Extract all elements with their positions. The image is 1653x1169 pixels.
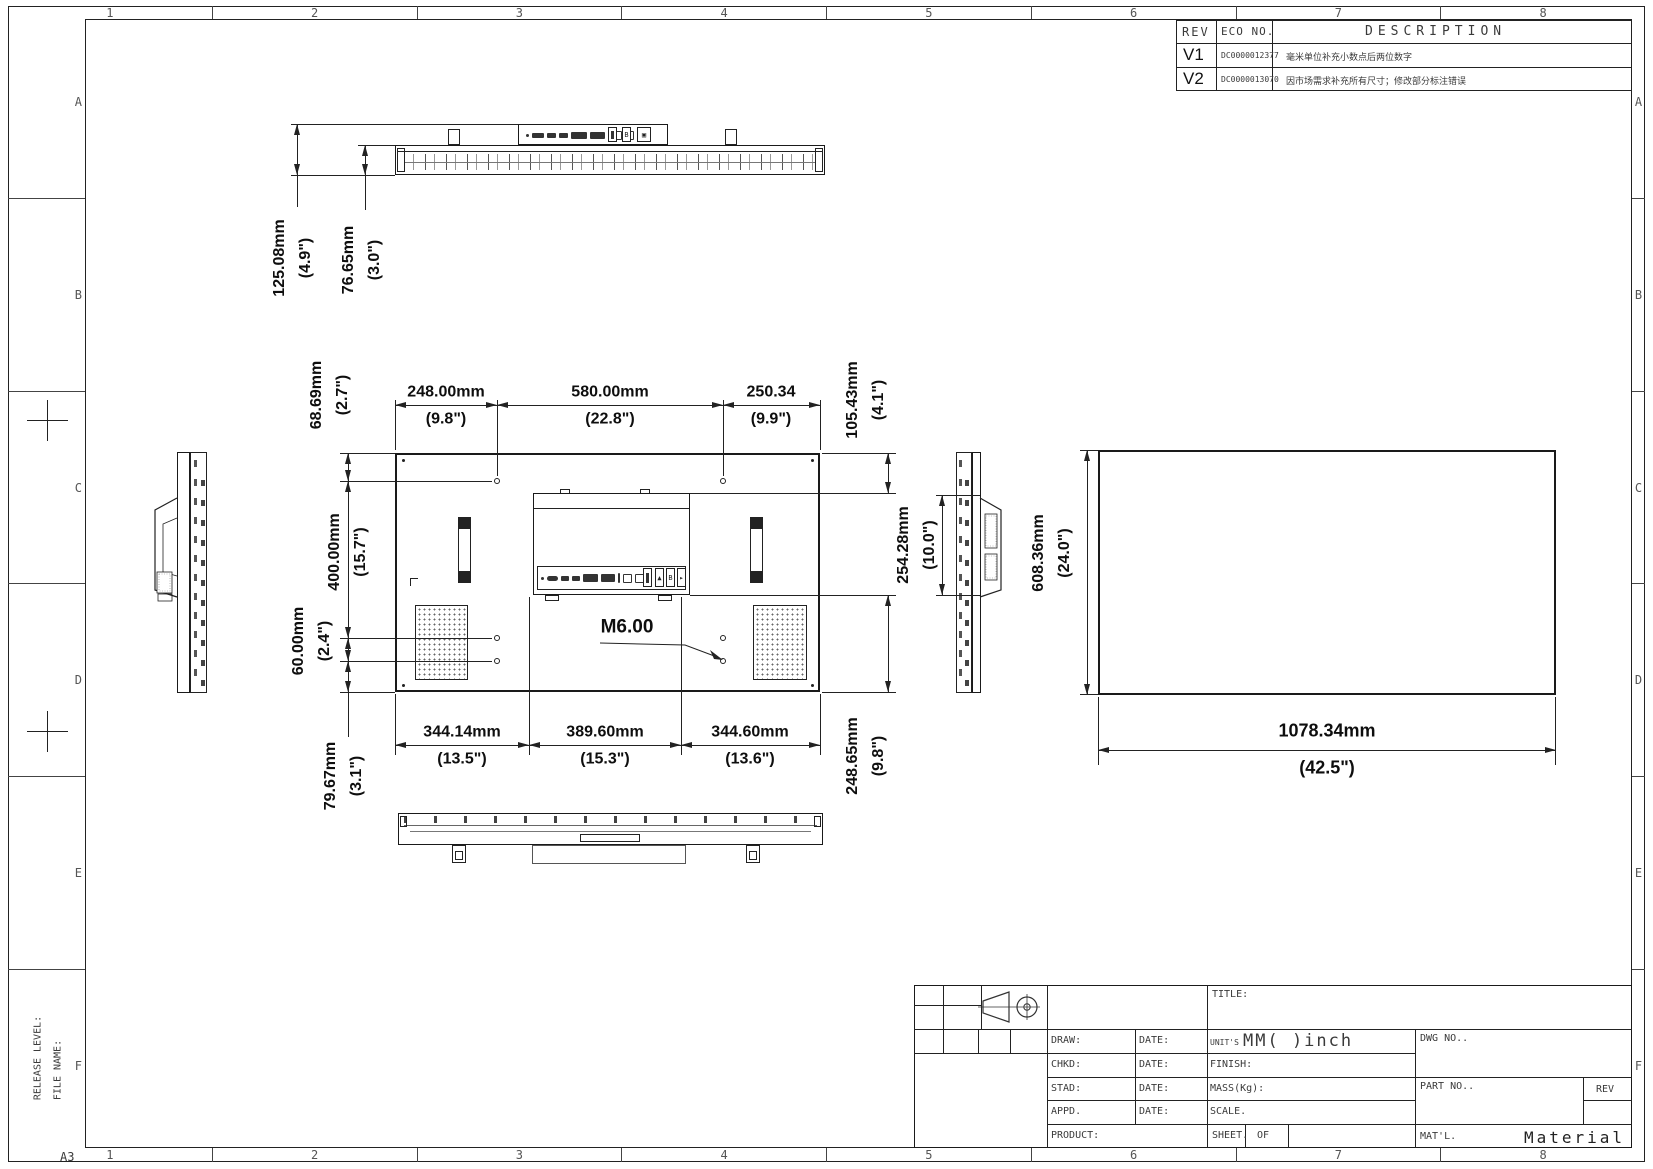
vesa-hole: [494, 658, 500, 664]
grid-columns-top: 12345678: [8, 6, 1645, 19]
rev-v1-eco: DC0000012377: [1221, 51, 1279, 60]
dim-top-depth-body: 76.65mm(3.0"): [336, 226, 388, 295]
product-label: PRODUCT:: [1051, 1130, 1099, 1141]
file-name-label: FILE NAME:: [53, 1040, 64, 1100]
rev-v1-desc: 毫米单位补充小数点后两位数字: [1286, 50, 1412, 63]
plug-icon: [643, 568, 652, 587]
stad-label: STAD:: [1051, 1083, 1081, 1094]
speaker-grille-right: [753, 605, 807, 680]
appd-date-label: DATE:: [1139, 1106, 1169, 1117]
top-view-lug: [725, 129, 737, 145]
fuse-icon: B: [622, 127, 631, 142]
rear-ports: [541, 571, 649, 585]
projection-symbol-icon: [975, 986, 1043, 1028]
grid-rows-right: ABCDEF: [1632, 6, 1645, 1162]
scale-label: SCALE.: [1210, 1106, 1246, 1117]
dim-vesa-width-mm: 580.00mm: [571, 383, 648, 402]
draw-label: DRAW:: [1051, 1035, 1081, 1046]
recess-foot: [658, 595, 672, 601]
material-text: Material: [1470, 1128, 1625, 1147]
thread-callout: M6.00: [601, 618, 654, 637]
breaker-icon: B: [666, 568, 675, 587]
dim-recess-to-bottom: 248.65mm(9.8"): [840, 717, 892, 794]
sheet-size-label: A3: [60, 1150, 74, 1164]
grid-rows-left: ABCDEF: [8, 6, 85, 1162]
chkd-date-label: DATE:: [1139, 1059, 1169, 1070]
appd-label: APPD.: [1051, 1106, 1081, 1117]
dim-vesa-right-offset-in: (9.9"): [751, 410, 791, 429]
vesa-hole: [494, 635, 500, 641]
chkd-label: CHKD:: [1051, 1059, 1081, 1070]
bottom-center-box: [532, 845, 686, 864]
units-label: UNIT'S: [1210, 1038, 1239, 1047]
release-level-label: RELEASE LEVEL:: [33, 1016, 44, 1100]
mass-label: MASS(Kg):: [1210, 1083, 1264, 1094]
vesa-hole: [720, 478, 726, 484]
dim-holes-to-bottom: 79.67mm(3.1"): [318, 742, 370, 811]
dim-top-depth-total: 125.08mm(4.9"): [267, 219, 319, 296]
side-handle-left: [150, 488, 178, 606]
dim-vesa-width-in: (22.8"): [585, 410, 634, 429]
of-label: OF: [1257, 1130, 1269, 1141]
bottom-center-notch: [580, 834, 640, 842]
rev-box-label: REV: [1596, 1084, 1614, 1095]
finish-label: FINISH:: [1210, 1059, 1252, 1070]
dim-bottom-center-span-in: (15.3"): [580, 750, 629, 769]
rev-v2-desc: 因市场需求补充所有尺寸；修改部分标注错误: [1286, 74, 1466, 87]
power-switch-icon: [608, 127, 617, 142]
dim-vesa-left-offset-mm: 248.00mm: [407, 383, 484, 402]
top-view-lug: [448, 129, 460, 145]
eco-header: ECO NO.: [1221, 25, 1274, 38]
part-no-label: PART NO..: [1420, 1081, 1474, 1092]
units-value: MM( )inch: [1243, 1031, 1353, 1051]
thread-leader-line: [595, 636, 730, 668]
dim-bottom-left-span-in: (13.5"): [437, 750, 486, 769]
arrow-up-icon: ▲: [655, 568, 664, 587]
socket-icon: ▸: [677, 568, 686, 587]
ac-inlet-icon: ▣: [637, 127, 651, 142]
grid-columns-bottom: 12345678: [8, 1148, 1645, 1162]
recess-foot: [545, 595, 559, 601]
rev-v1: V1: [1183, 45, 1204, 65]
side-handle-right: [979, 488, 1006, 606]
dim-hole-pair-gap: 60.00mm(2.4"): [286, 607, 338, 676]
vesa-hole: [494, 478, 500, 484]
dim-vesa-height: 400.00mm(15.7"): [322, 513, 374, 590]
dim-display-width-mm: 1078.34mm: [1278, 722, 1375, 741]
dim-bottom-right-span-mm: 344.60mm: [711, 723, 788, 742]
title-label: TITLE:: [1212, 989, 1248, 1000]
dim-vesa-left-offset-in: (9.8"): [426, 410, 466, 429]
dim-recess-height: 254.28mm(10.0"): [891, 506, 943, 583]
speaker-grille-left: [415, 605, 468, 680]
dim-bottom-right-span-in: (13.6"): [725, 750, 774, 769]
dim-bottom-center-span-mm: 389.60mm: [566, 723, 643, 742]
sheet-label: SHEET.: [1212, 1130, 1248, 1141]
engineering-drawing-sheet: 12345678 12345678 ABCDEF ABCDEF A3 RELEA…: [0, 0, 1653, 1169]
rev-v2-eco: DC0000013070: [1221, 75, 1279, 84]
description-header: DESCRIPTION: [1365, 24, 1506, 39]
dim-display-height: 608.36mm(24.0"): [1026, 514, 1078, 591]
rev-header: REV: [1182, 25, 1210, 39]
stad-date-label: DATE:: [1139, 1083, 1169, 1094]
dim-top-to-recess: 105.43mm(4.1"): [840, 361, 892, 438]
rev-v2: V2: [1183, 69, 1204, 89]
dwg-no-label: DWG NO..: [1420, 1033, 1468, 1044]
bottom-view-screws: [404, 816, 817, 823]
matl-label: MAT'L.: [1420, 1131, 1456, 1142]
dim-display-width-in: (42.5"): [1299, 759, 1355, 778]
dim-vesa-right-offset-mm: 250.34: [747, 383, 796, 402]
dim-bottom-left-span-mm: 344.14mm: [423, 723, 500, 742]
dim-edge-to-holes-top: 68.69mm(2.7"): [304, 361, 356, 430]
front-panel: [1098, 450, 1556, 695]
draw-date-label: DATE:: [1139, 1035, 1169, 1046]
